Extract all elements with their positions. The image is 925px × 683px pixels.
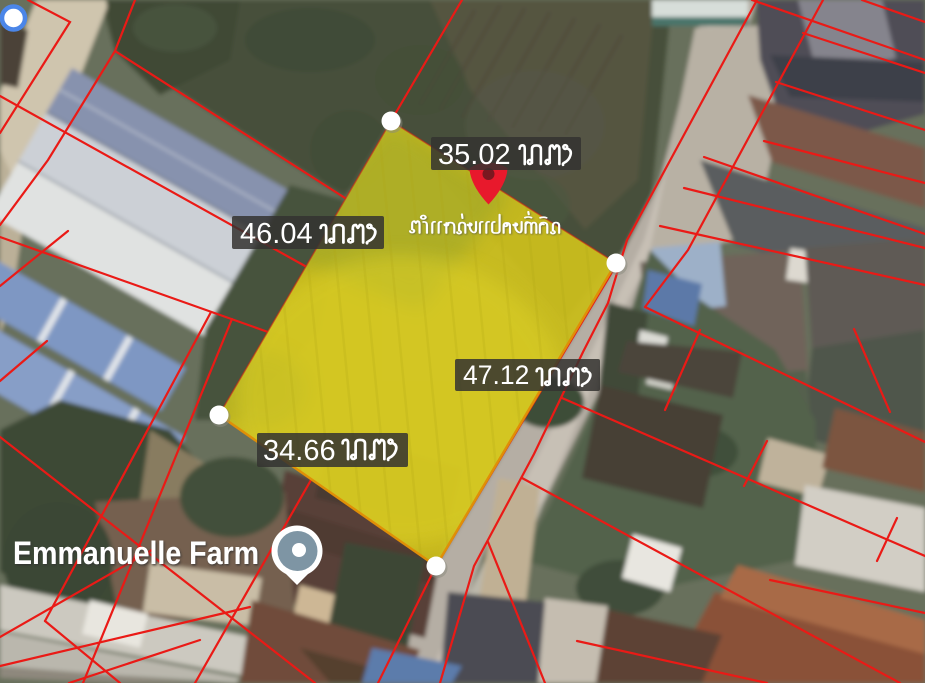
svg-text:34.66: 34.66: [263, 435, 336, 467]
svg-text:46.04: 46.04: [240, 218, 313, 250]
svg-text:47.12: 47.12: [463, 360, 529, 390]
svg-text:35.02: 35.02: [438, 139, 511, 171]
svg-text:Emmanuelle Farm: Emmanuelle Farm: [13, 535, 259, 571]
